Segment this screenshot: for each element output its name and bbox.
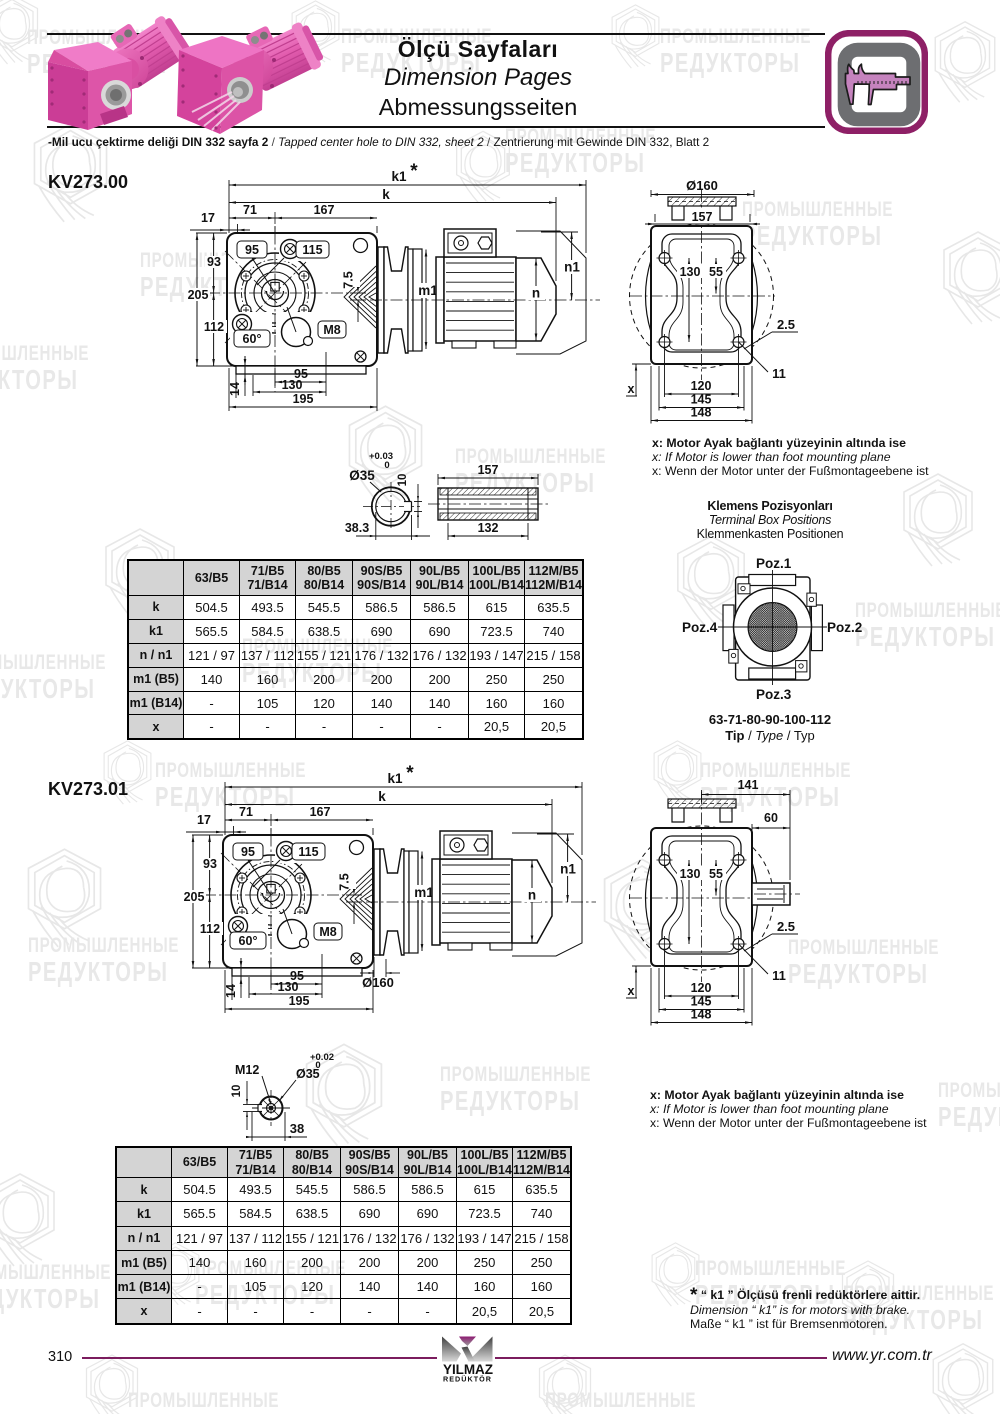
- svg-text:*: *: [406, 763, 414, 784]
- svg-text:112: 112: [204, 320, 224, 334]
- svg-text:60: 60: [764, 811, 778, 825]
- svg-text:38.3: 38.3: [345, 521, 369, 535]
- svg-text:93: 93: [207, 255, 221, 269]
- svg-text:+0.02: +0.02: [310, 1052, 334, 1063]
- svg-text:10: 10: [397, 474, 409, 487]
- svg-text:n: n: [532, 286, 540, 301]
- svg-text:Ø160: Ø160: [686, 178, 718, 193]
- svg-text:205: 205: [188, 288, 209, 302]
- svg-text:112: 112: [200, 922, 220, 936]
- svg-text:141: 141: [738, 778, 759, 792]
- svg-text:m1: m1: [418, 283, 438, 298]
- svg-text:k: k: [382, 187, 390, 202]
- svg-text:2.5: 2.5: [777, 919, 795, 934]
- svg-text:95: 95: [245, 243, 259, 257]
- svg-text:m1: m1: [414, 885, 434, 900]
- svg-text:x: x: [628, 382, 635, 396]
- svg-text:7.5: 7.5: [338, 873, 352, 890]
- svg-text:95: 95: [241, 845, 255, 859]
- svg-text:130: 130: [680, 867, 701, 881]
- svg-text:130: 130: [278, 980, 299, 994]
- svg-text:157: 157: [692, 210, 713, 224]
- svg-text:7.5: 7.5: [342, 271, 356, 288]
- svg-text:167: 167: [314, 203, 335, 217]
- svg-text:k1: k1: [391, 169, 407, 184]
- svg-text:71: 71: [239, 805, 253, 819]
- svg-text:2.5: 2.5: [777, 317, 795, 332]
- svg-text:148: 148: [691, 406, 712, 420]
- svg-text:M8: M8: [319, 925, 336, 939]
- svg-text:Ø160: Ø160: [362, 975, 394, 990]
- svg-text:n: n: [528, 888, 536, 903]
- svg-text:148: 148: [691, 1008, 712, 1022]
- svg-text:11: 11: [772, 366, 786, 381]
- svg-text:55: 55: [709, 265, 723, 279]
- svg-text:Ø35: Ø35: [296, 1067, 320, 1081]
- svg-text:71: 71: [243, 203, 257, 217]
- svg-text:132: 132: [478, 521, 499, 535]
- svg-text:M12: M12: [235, 1063, 259, 1077]
- svg-text:167: 167: [310, 805, 331, 819]
- svg-text:n1: n1: [564, 260, 580, 275]
- svg-text:17: 17: [201, 211, 215, 225]
- svg-text:17: 17: [197, 813, 211, 827]
- svg-text:M8: M8: [323, 323, 340, 337]
- svg-text:157: 157: [478, 463, 499, 477]
- svg-text:60°: 60°: [239, 934, 258, 948]
- svg-text:38: 38: [290, 1121, 304, 1136]
- svg-text:205: 205: [184, 890, 205, 904]
- svg-text:14: 14: [224, 984, 238, 998]
- svg-text:x: x: [628, 984, 635, 998]
- svg-text:120: 120: [691, 379, 712, 393]
- svg-text:130: 130: [680, 265, 701, 279]
- svg-text:0: 0: [384, 460, 389, 471]
- svg-text:145: 145: [691, 393, 712, 407]
- svg-text:14: 14: [228, 382, 242, 396]
- svg-text:195: 195: [293, 392, 314, 406]
- svg-text:n1: n1: [560, 862, 576, 877]
- svg-text:115: 115: [298, 845, 318, 859]
- svg-text:55: 55: [709, 867, 723, 881]
- svg-text:130: 130: [282, 378, 303, 392]
- svg-text:195: 195: [289, 994, 310, 1008]
- svg-text:Ø35: Ø35: [349, 468, 375, 483]
- svg-text:145: 145: [691, 995, 712, 1009]
- svg-text:10: 10: [231, 1085, 243, 1098]
- svg-text:93: 93: [203, 857, 217, 871]
- svg-text:k: k: [378, 789, 386, 804]
- svg-text:120: 120: [691, 981, 712, 995]
- svg-text:*: *: [410, 161, 418, 182]
- svg-text:60°: 60°: [243, 332, 262, 346]
- svg-text:k1: k1: [387, 771, 403, 786]
- svg-text:115: 115: [302, 243, 322, 257]
- svg-text:REDÜKTÖR: REDÜKTÖR: [443, 1375, 492, 1384]
- svg-text:11: 11: [772, 968, 786, 983]
